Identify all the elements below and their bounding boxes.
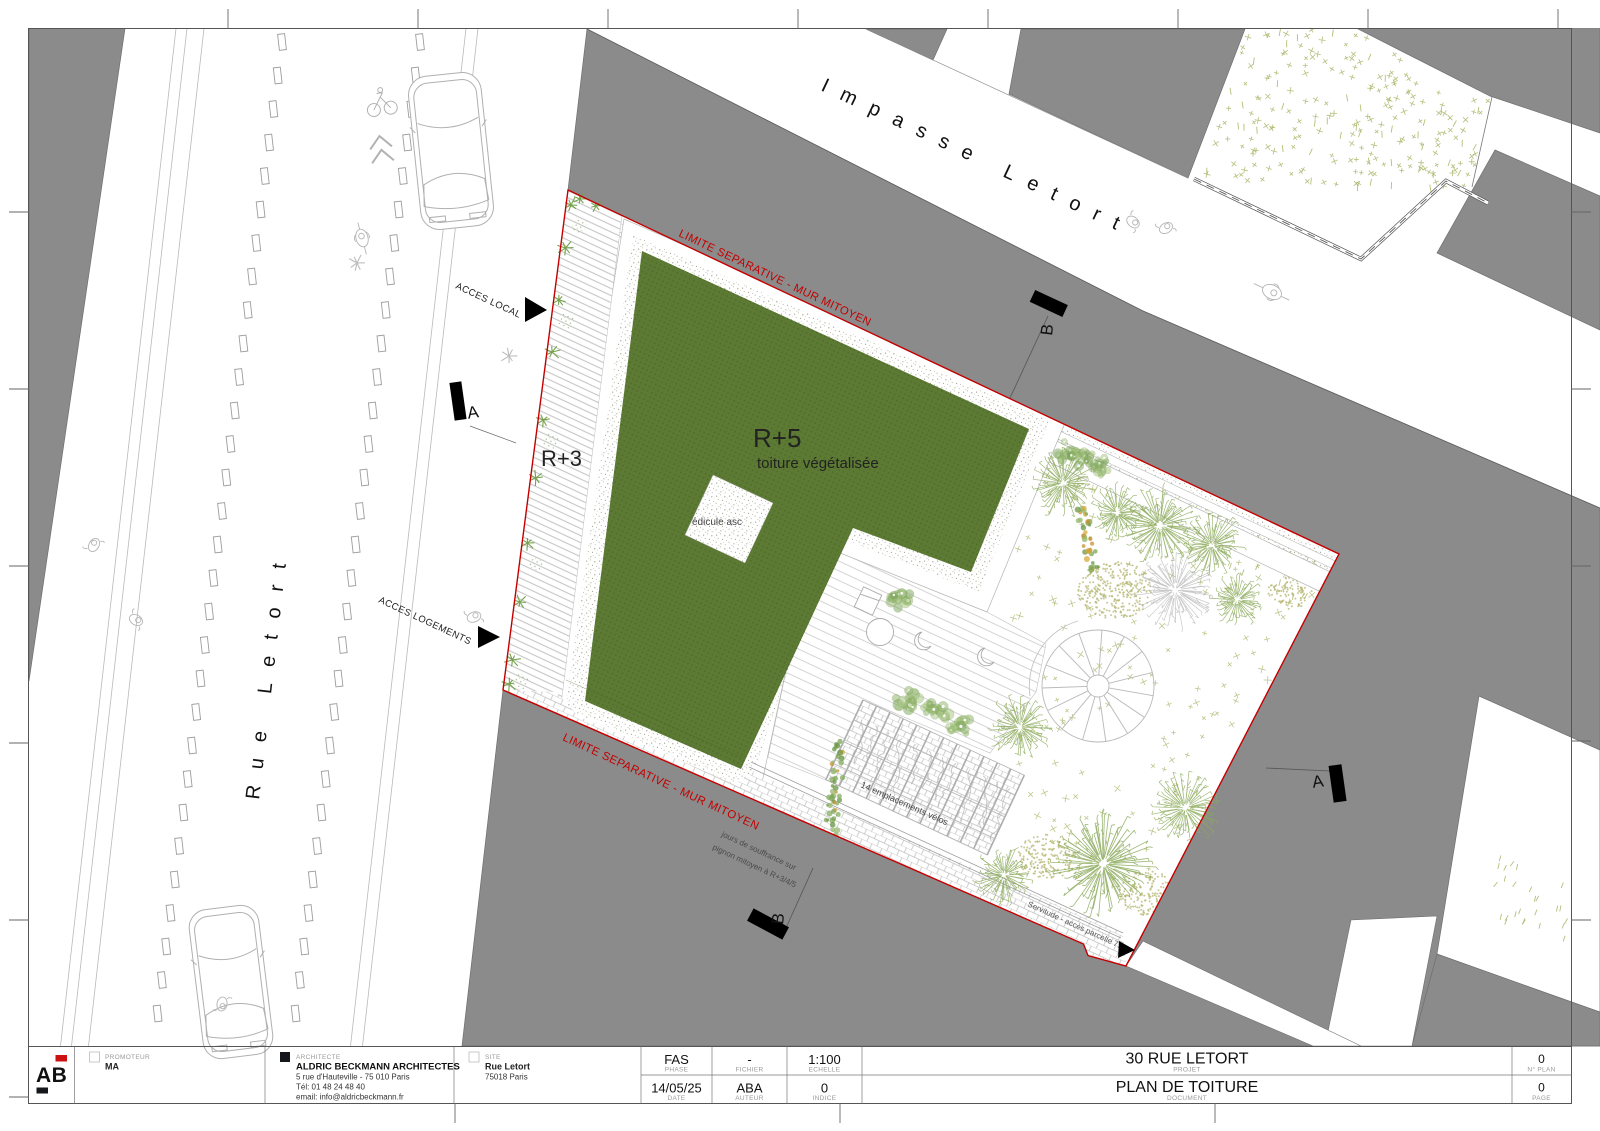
svg-text:0: 0 xyxy=(1538,1052,1545,1066)
svg-text:DATE: DATE xyxy=(667,1095,685,1102)
svg-text:N° PLAN: N° PLAN xyxy=(1527,1066,1555,1074)
svg-text:B: B xyxy=(1037,323,1057,336)
svg-text:R+5: R+5 xyxy=(753,423,801,453)
svg-text:PROJET: PROJET xyxy=(1173,1067,1200,1074)
svg-text:75018 Paris: 75018 Paris xyxy=(485,1073,528,1082)
svg-text:MA: MA xyxy=(105,1062,119,1072)
svg-text:Tél: 01 48 24 48 40: Tél: 01 48 24 48 40 xyxy=(296,1083,365,1092)
svg-text:INDICE: INDICE xyxy=(813,1095,837,1102)
svg-text:R+3: R+3 xyxy=(541,446,582,471)
svg-text:édicule asc: édicule asc xyxy=(692,517,742,528)
svg-text:email: info@aldricbeckmann.fr: email: info@aldricbeckmann.fr xyxy=(296,1093,404,1102)
svg-text:-: - xyxy=(747,1052,751,1067)
svg-text:1:100: 1:100 xyxy=(808,1052,841,1067)
svg-text:toiture végétalisée: toiture végétalisée xyxy=(757,455,879,472)
svg-text:14/05/25: 14/05/25 xyxy=(651,1081,702,1096)
svg-text:ARCHITECTE: ARCHITECTE xyxy=(296,1054,341,1061)
svg-text:FAS: FAS xyxy=(664,1052,689,1067)
svg-text:PAGE: PAGE xyxy=(1532,1095,1551,1102)
svg-text:5 rue d'Hauteville - 75 010 Pa: 5 rue d'Hauteville - 75 010 Paris xyxy=(296,1073,410,1082)
svg-text:PLAN DE TOITURE: PLAN DE TOITURE xyxy=(1116,1079,1259,1096)
svg-text:0: 0 xyxy=(1538,1081,1545,1095)
svg-text:AB: AB xyxy=(36,1064,67,1087)
svg-text:B: B xyxy=(768,912,788,925)
svg-text:Rue Letort: Rue Letort xyxy=(485,1062,530,1072)
svg-text:0: 0 xyxy=(821,1081,828,1096)
svg-text:30 RUE LETORT: 30 RUE LETORT xyxy=(1125,1051,1248,1068)
svg-text:AUTEUR: AUTEUR xyxy=(735,1095,764,1102)
svg-text:SITE: SITE xyxy=(485,1054,501,1061)
svg-text:DOCUMENT: DOCUMENT xyxy=(1167,1095,1207,1102)
svg-text:FICHIER: FICHIER xyxy=(735,1067,763,1074)
svg-text:PROMOTEUR: PROMOTEUR xyxy=(105,1054,150,1061)
svg-text:PHASE: PHASE xyxy=(665,1067,689,1074)
svg-text:ALDRIC BECKMANN ARCHITECTES: ALDRIC BECKMANN ARCHITECTES xyxy=(296,1062,460,1073)
svg-text:ECHELLE: ECHELLE xyxy=(809,1067,841,1074)
svg-text:ABA: ABA xyxy=(736,1081,762,1096)
